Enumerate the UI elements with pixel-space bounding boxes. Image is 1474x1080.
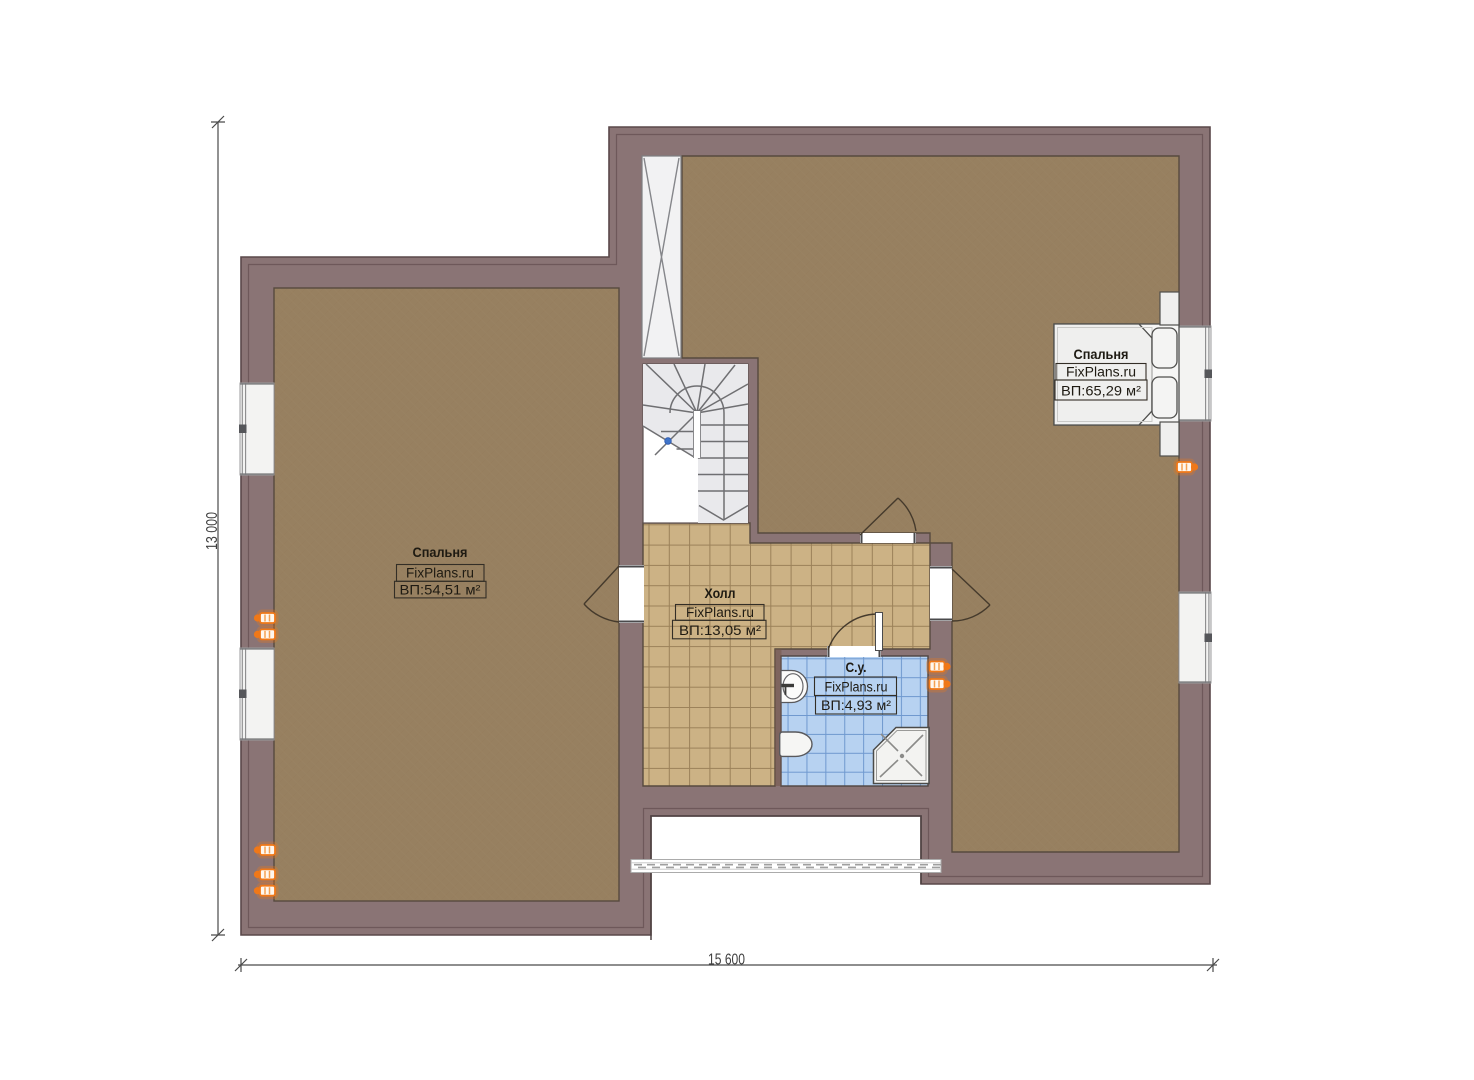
svg-text:FixPlans.ru: FixPlans.ru (825, 680, 888, 695)
svg-text:FixPlans.ru: FixPlans.ru (686, 605, 754, 620)
svg-text:Холл: Холл (705, 586, 736, 601)
svg-text:FixPlans.ru: FixPlans.ru (406, 566, 474, 581)
svg-text:15 600: 15 600 (708, 952, 745, 969)
svg-text:С.у.: С.у. (846, 660, 867, 675)
svg-text:Спальня: Спальня (1074, 347, 1129, 362)
svg-text:13 000: 13 000 (204, 512, 221, 550)
svg-text:ВП:13,05 м²: ВП:13,05 м² (679, 623, 762, 638)
svg-text:Спальня: Спальня (413, 545, 468, 560)
svg-text:ВП:54,51 м²: ВП:54,51 м² (400, 582, 482, 597)
svg-text:ВП:65,29 м²: ВП:65,29 м² (1061, 384, 1142, 399)
svg-text:ВП:4,93 м²: ВП:4,93 м² (821, 698, 892, 713)
svg-text:FixPlans.ru: FixPlans.ru (1066, 365, 1136, 380)
